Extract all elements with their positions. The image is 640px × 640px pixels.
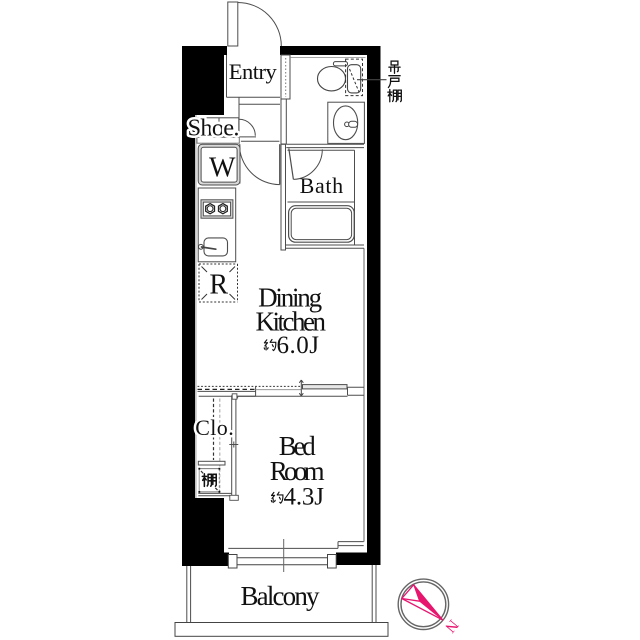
svg-text:Shoe.: Shoe.: [188, 114, 240, 141]
svg-text:R: R: [209, 270, 228, 301]
svg-text:W: W: [209, 152, 236, 183]
svg-text:Bath: Bath: [300, 173, 344, 198]
svg-text:4.3J: 4.3J: [284, 483, 325, 510]
svg-text:6.0J: 6.0J: [277, 332, 320, 359]
svg-text:Entry: Entry: [229, 59, 278, 84]
svg-text:Clo.: Clo.: [195, 415, 234, 440]
svg-text:Room: Room: [270, 456, 325, 486]
svg-text:Balcony: Balcony: [241, 581, 321, 611]
